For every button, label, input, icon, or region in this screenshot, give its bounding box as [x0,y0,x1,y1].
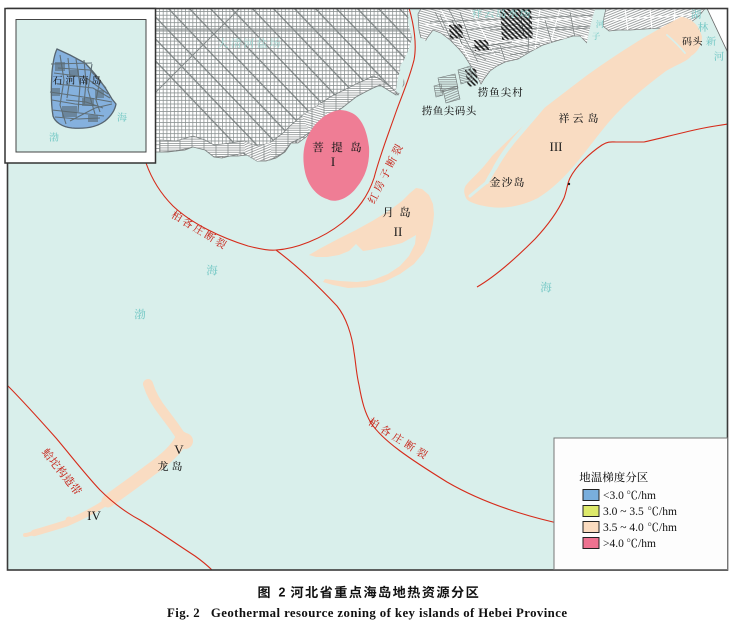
svg-text:<3.0: <3.0 [603,490,624,502]
svg-text:3.5 ~ 4.0: 3.5 ~ 4.0 [603,522,644,534]
svg-text:2: 2 [279,586,286,600]
svg-text:IV: IV [87,508,101,523]
svg-text:Fig. 2 Geothermal resource z: Fig. 2 Geothermal resource zoning of key… [167,606,567,620]
svg-text:V: V [174,442,184,457]
svg-text:/hm: /hm [638,538,656,550]
svg-text:III: III [550,139,563,154]
svg-text:/hm: /hm [659,506,677,518]
svg-text:/hm: /hm [659,522,677,534]
svg-text:I: I [331,154,335,169]
svg-text:II: II [394,224,403,239]
svg-text:>4.0: >4.0 [603,538,624,550]
svg-text:3.0 ~ 3.5: 3.0 ~ 3.5 [603,506,644,518]
svg-text:/hm: /hm [638,490,656,502]
